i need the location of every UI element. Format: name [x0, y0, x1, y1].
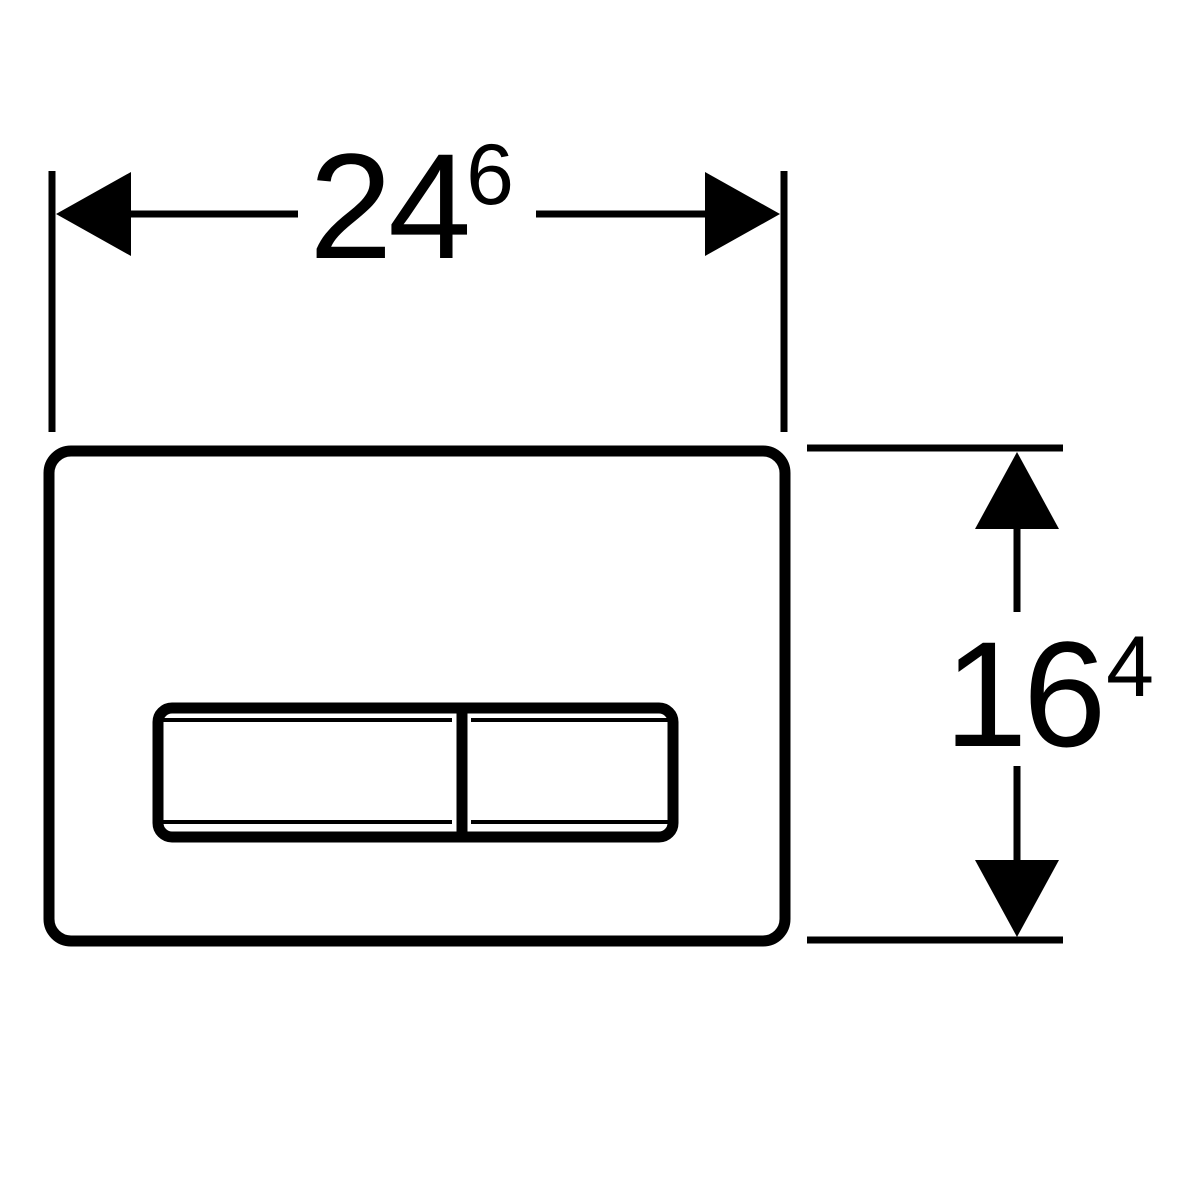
dim-arrowhead-left-icon	[56, 172, 131, 256]
dimension-drawing-svg: 24 6 16 4	[0, 0, 1200, 1200]
dim-arrowhead-up-icon	[975, 452, 1059, 529]
height-dimension-value: 16	[944, 610, 1102, 778]
height-dimension-superscript: 4	[1106, 619, 1154, 715]
button-frame	[158, 708, 673, 837]
flush-plate-outline	[49, 451, 785, 941]
width-dimension-value: 24	[309, 122, 468, 290]
flush-buttons	[157, 704, 673, 841]
technical-drawing-canvas: 24 6 16 4	[0, 0, 1200, 1200]
width-dimension: 24 6	[52, 122, 784, 432]
height-dimension: 16 4	[807, 448, 1154, 940]
width-dimension-superscript: 6	[466, 127, 514, 223]
dim-arrowhead-down-icon	[975, 860, 1059, 937]
dim-arrowhead-right-icon	[705, 172, 780, 256]
